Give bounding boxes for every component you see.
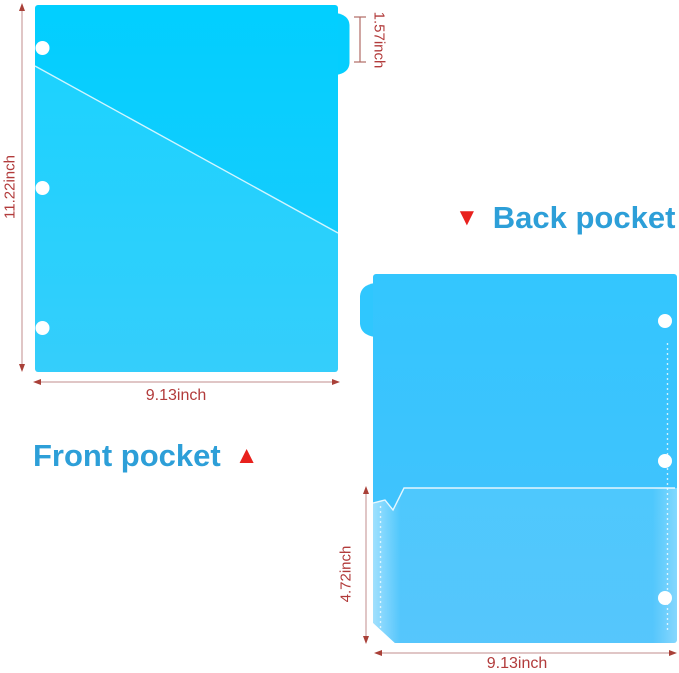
- front-tab-dimension-label: 1.57inch: [372, 12, 387, 69]
- back-folder-tab: [360, 283, 375, 337]
- front-height-dimension-label: 11.22inch: [3, 155, 18, 219]
- binder-hole: [658, 314, 672, 328]
- front-pocket-caption-text: Front pocket: [33, 440, 221, 471]
- back-pocket-caption: ▼ Back pocket: [455, 202, 675, 233]
- dim-arrow: [374, 650, 382, 656]
- dim-arrow: [669, 650, 677, 656]
- back-pocket-caption-text: Back pocket: [493, 202, 676, 233]
- dim-arrow: [363, 636, 369, 644]
- front-folder: [35, 5, 350, 372]
- back-width-dimension-label: 9.13inch: [487, 656, 548, 672]
- dim-arrow: [363, 486, 369, 494]
- up-triangle-icon: ▲: [235, 444, 259, 468]
- binder-hole: [36, 321, 50, 335]
- binder-hole: [658, 454, 672, 468]
- dim-arrow: [332, 379, 340, 385]
- front-pocket-caption: Front pocket ▲: [33, 440, 259, 471]
- binder-hole: [658, 591, 672, 605]
- product-dimension-diagram: 11.22inch 1.57inch 9.13inch Front pocket…: [0, 0, 679, 673]
- front-width-dimension-label: 9.13inch: [146, 388, 207, 404]
- back-folder: [360, 274, 677, 645]
- back-pocket-height-dimension-label: 4.72inch: [339, 546, 354, 603]
- front-folder-tab: [336, 13, 350, 75]
- dim-arrow: [19, 3, 25, 11]
- binder-hole: [36, 41, 50, 55]
- down-triangle-icon: ▼: [455, 206, 479, 230]
- back-folder-pocket: [373, 488, 677, 643]
- front-tab-dimension-line: [354, 17, 366, 62]
- binder-hole: [36, 181, 50, 195]
- dim-arrow: [19, 364, 25, 372]
- dim-arrow: [33, 379, 41, 385]
